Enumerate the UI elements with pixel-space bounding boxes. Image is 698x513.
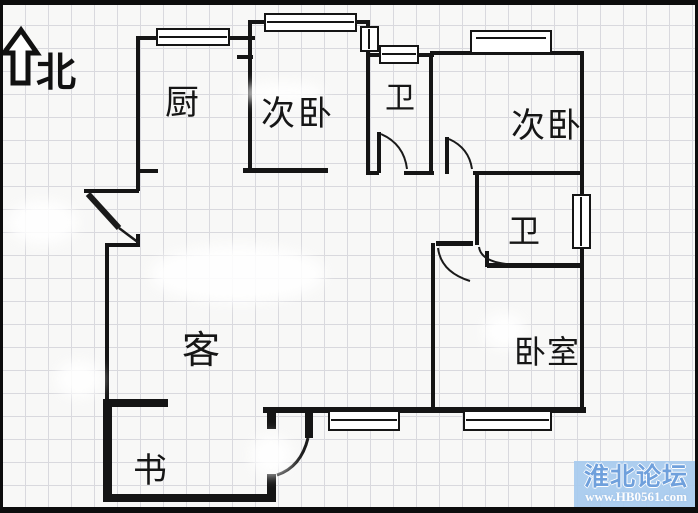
master-door-arc <box>438 248 470 281</box>
floorplan-drawing <box>0 0 698 513</box>
wall <box>105 243 109 403</box>
wall <box>431 243 435 413</box>
wall <box>248 20 252 173</box>
floorplan-canvas: 厨 次卧 卫 次卧 卫 客 卧室 书 北 淮北论坛 www.HB0561.com <box>0 0 698 513</box>
bedroom-left-window <box>265 14 356 31</box>
room-label-bathroom-top: 卫 <box>385 84 415 114</box>
wall <box>136 169 158 173</box>
wall <box>429 53 433 175</box>
bathroom-top-door-arc <box>381 134 407 169</box>
bathroom-top-side-window <box>361 27 378 51</box>
wall <box>103 494 275 502</box>
bathroom-top-window <box>380 46 418 63</box>
wall <box>475 171 479 245</box>
wall <box>366 48 370 175</box>
bottom-window-left <box>329 411 399 430</box>
room-label-second-bedroom-right: 次卧 <box>511 109 583 143</box>
bottom-window-right <box>464 411 551 430</box>
room-label-second-bedroom-left: 次卧 <box>261 97 335 131</box>
wall <box>84 189 139 193</box>
door-leaf <box>436 241 473 246</box>
room-label-master-bedroom: 卧室 <box>514 336 580 368</box>
wall <box>103 399 112 502</box>
right-wall-window <box>573 195 590 248</box>
wall <box>237 55 253 59</box>
watermark-panel: 淮北论坛 www.HB0561.com <box>574 461 698 507</box>
wall <box>473 171 584 175</box>
image-border-left <box>0 0 3 513</box>
door-leaf <box>445 137 449 174</box>
room-label-bathroom-middle: 卫 <box>508 215 540 247</box>
room-label-living-room: 客 <box>182 331 220 369</box>
watermark-site-url: www.HB0561.com <box>585 489 687 505</box>
kitchen-window <box>157 29 229 45</box>
door-arcs <box>88 134 506 475</box>
study-door-arc <box>277 438 308 475</box>
entry-door-leaf <box>88 194 119 228</box>
room-label-kitchen: 厨 <box>165 86 199 120</box>
wall <box>105 243 139 247</box>
wall <box>136 36 140 191</box>
bathroom-mid-door-arc <box>479 247 506 264</box>
wall <box>243 168 328 173</box>
bedroom-right-bay-window <box>471 31 551 53</box>
image-border-bottom <box>0 507 698 513</box>
wall <box>267 407 276 429</box>
room-label-study: 书 <box>133 454 167 488</box>
wall <box>404 171 434 175</box>
bedroom-right-door-arc <box>449 139 472 169</box>
image-border-top <box>0 0 698 5</box>
north-label: 北 <box>36 40 76 98</box>
wall <box>305 413 313 438</box>
north-arrow-icon <box>4 30 37 83</box>
wall <box>267 474 276 502</box>
watermark-site-name: 淮北论坛 <box>584 464 688 489</box>
door-leaf <box>377 132 381 173</box>
wall <box>103 399 168 407</box>
